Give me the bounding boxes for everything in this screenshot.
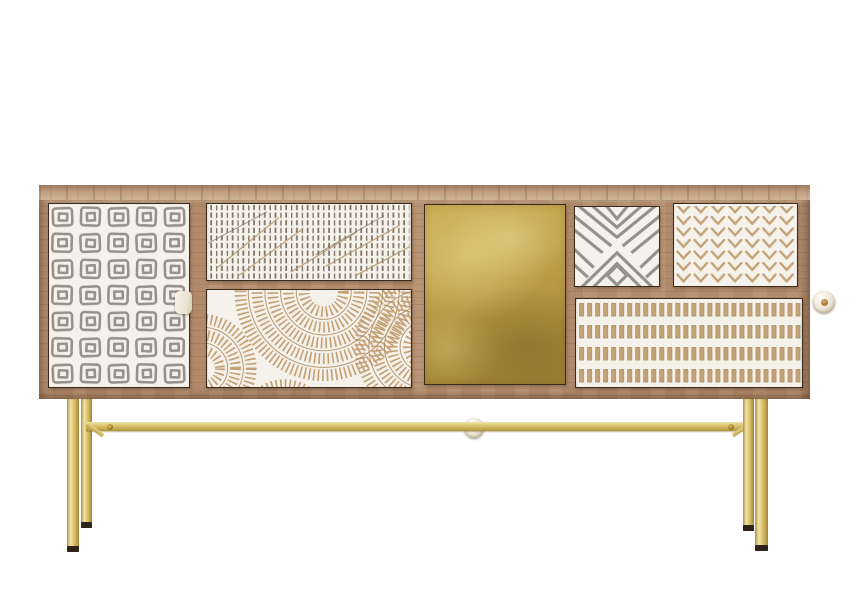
leg-foot-cap [67, 546, 79, 552]
stretcher-screw [728, 424, 734, 430]
herringbone-pattern-art [674, 204, 797, 286]
front-right-leg [755, 399, 768, 551]
leg-stretcher-bar [86, 422, 748, 431]
left-door-knob [175, 291, 192, 314]
back-left-leg [81, 399, 92, 528]
squares-pattern-art [49, 204, 189, 387]
x-motif-drawer-panel [574, 206, 660, 287]
brass-door-knob [813, 291, 835, 313]
herringbone-drawer-panel [673, 203, 798, 287]
fan-drawer-panel [206, 289, 412, 388]
fan-pattern-art [207, 290, 411, 387]
dash-pattern-art [576, 299, 802, 387]
left-door-squares-panel [48, 203, 190, 388]
hatch-drawer-panel [206, 203, 412, 281]
stretcher-screw [107, 424, 113, 430]
dash-drawer-panel [575, 298, 803, 388]
leg-foot-cap [743, 525, 754, 531]
leg-foot-cap [81, 522, 92, 528]
cabinet-front-face [39, 200, 810, 399]
leg-foot-cap [755, 545, 768, 551]
front-left-leg [67, 399, 79, 552]
brass-door-panel [424, 204, 566, 385]
sideboard-cabinet [39, 185, 810, 399]
hatch-pattern-art [207, 204, 411, 280]
product-photo-scene [0, 0, 865, 611]
brass-knob-center-dot [821, 299, 828, 306]
cabinet-top-surface [39, 185, 810, 201]
back-right-leg [743, 399, 754, 531]
x-pattern-art [575, 207, 659, 286]
